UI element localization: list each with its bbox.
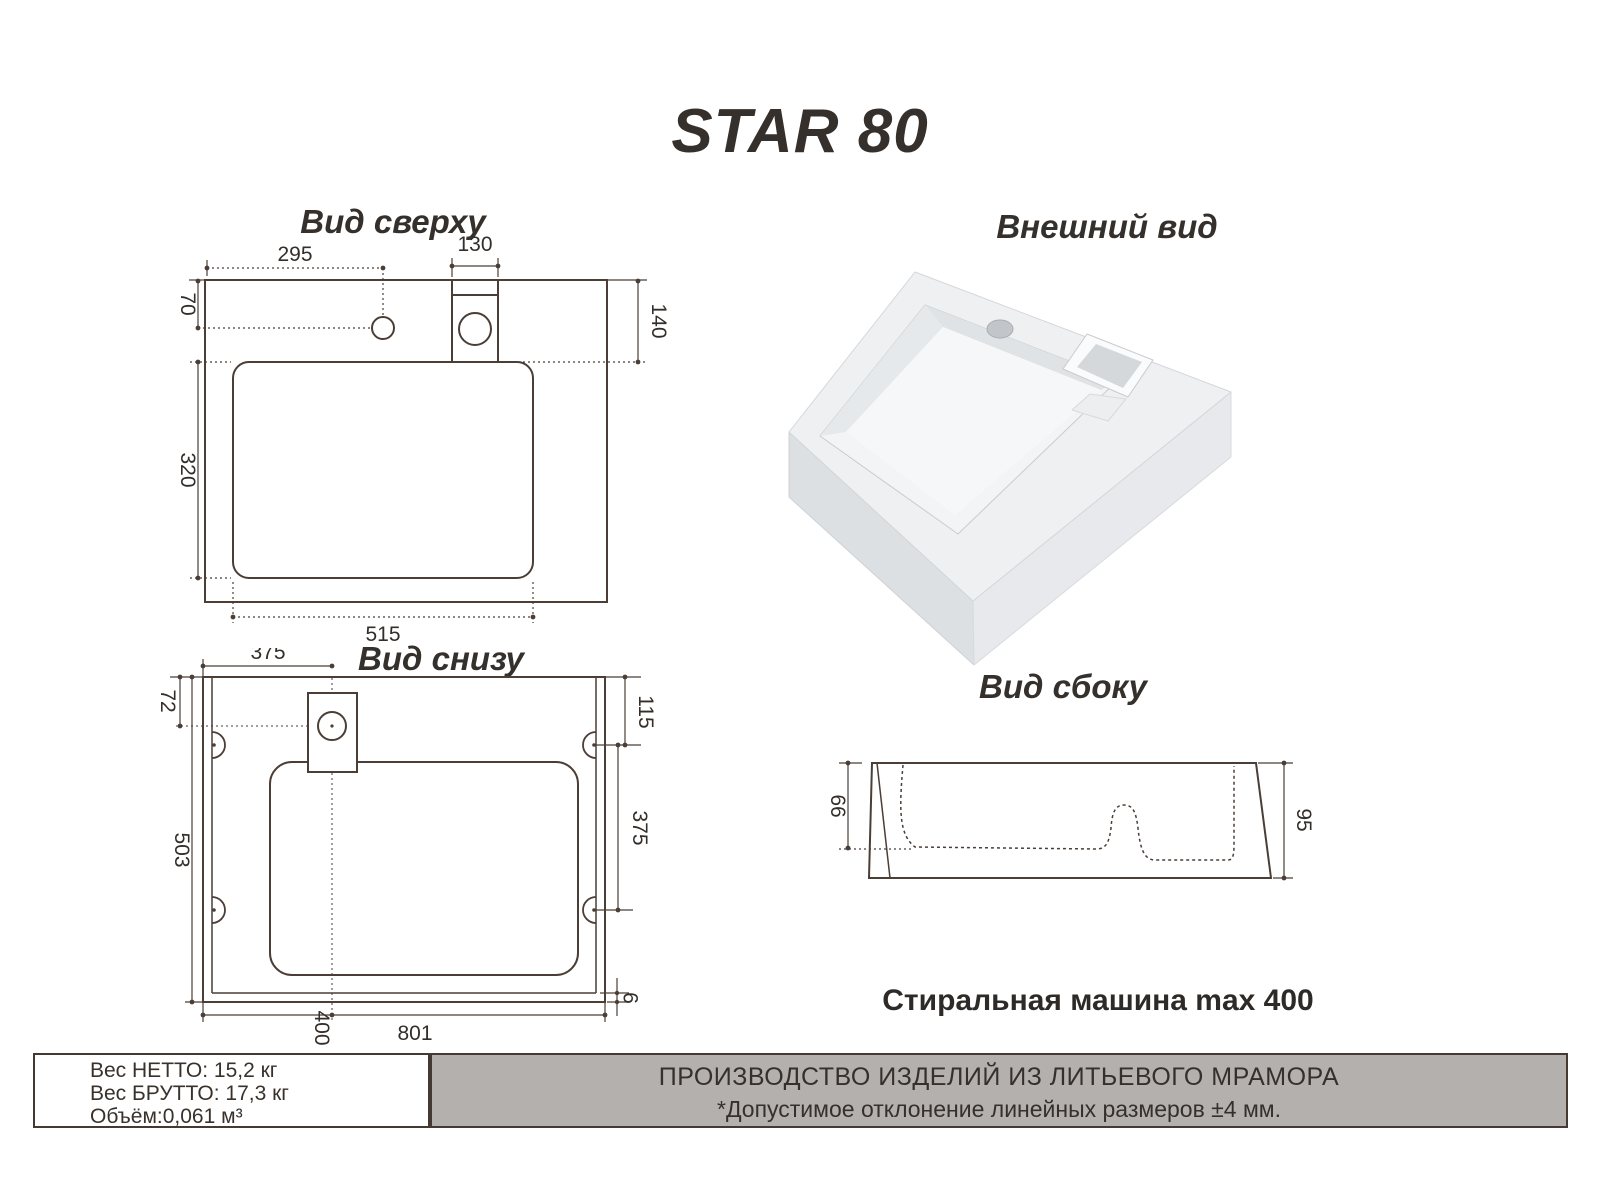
- net-weight: Вес НЕТТО: 15,2 кг: [90, 1059, 428, 1082]
- dim-width: 801: [397, 1022, 432, 1045]
- top-drain-box: [452, 280, 498, 362]
- dim-faucet-y: 70: [176, 292, 199, 315]
- washer-note: Стиральная машина max 400: [882, 984, 1313, 1018]
- bottom-drain-box: [308, 693, 357, 772]
- top-view-drawing: 295 130 70 140 320 515: [140, 232, 680, 650]
- bottom-view-dim-ticks: [178, 664, 628, 1018]
- top-view-outline: [205, 280, 607, 602]
- side-view-drawing: 66 95: [815, 740, 1360, 890]
- dim-rim: 9: [620, 992, 643, 1004]
- dim-hole-pitch: 375: [628, 810, 651, 845]
- dim-bowl-depth: 66: [826, 794, 849, 817]
- external-view-title: Внешний вид: [996, 208, 1217, 246]
- dim-drain-w: 130: [457, 233, 492, 256]
- bottom-view-dimension-lines: [170, 659, 641, 1022]
- top-faucet-hole: [372, 317, 394, 339]
- bottom-view-drawing: 375 72 503 115 375 400 801 9: [140, 648, 680, 1048]
- bottom-outer-edge: [203, 677, 605, 1002]
- sink-3d: [789, 272, 1231, 665]
- dim-basin-w: 515: [365, 623, 400, 646]
- top-basin-edge: [233, 362, 533, 578]
- top-view-dimension-lines: [189, 258, 647, 623]
- dim-height: 95: [1292, 808, 1315, 831]
- page-title: STAR 80: [671, 96, 928, 167]
- tolerance-note: *Допустимое отклонение линейных размеров…: [432, 1096, 1566, 1123]
- top-view-dim-ticks: [196, 264, 641, 620]
- dim-drain-h: 140: [647, 303, 670, 338]
- side-view-dim-ticks: [846, 761, 1287, 881]
- footer-weights-box: Вес НЕТТО: 15,2 кг Вес БРУТТО: 17,3 кг О…: [33, 1053, 430, 1128]
- dim-basin-h: 320: [176, 452, 199, 487]
- gross-weight: Вес БРУТТО: 17,3 кг: [90, 1082, 428, 1105]
- bottom-recess-edge: [270, 762, 578, 975]
- bottom-view-outline: [203, 677, 605, 1002]
- top-outer-edge: [205, 280, 607, 602]
- manufacture-note: ПРОИЗВОДСТВО ИЗДЕЛИЙ ИЗ ЛИТЬЕВОГО МРАМОР…: [432, 1063, 1566, 1092]
- dim-hole-top: 115: [634, 695, 657, 728]
- dim-washer-cx: 400: [310, 1010, 333, 1045]
- side-view-outline: [869, 763, 1271, 878]
- side-basin-profile: [901, 765, 1234, 860]
- dim-depth: 503: [170, 832, 193, 867]
- footer-manufacture-box: ПРОИЗВОДСТВО ИЗДЕЛИЙ ИЗ ЛИТЬЕВОГО МРАМОР…: [430, 1053, 1568, 1128]
- faucet-hole-3d: [987, 320, 1013, 338]
- spec-sheet: STAR 80 Вид сверху Вид снизу Внешний вид…: [0, 0, 1600, 1200]
- external-view-rendering: [760, 250, 1450, 680]
- dim-faucet-x: 295: [277, 243, 312, 266]
- dim-drain-cx: 375: [250, 648, 285, 664]
- dim-drain-cy: 72: [156, 689, 179, 712]
- volume: Объём:0,061 м³: [90, 1105, 428, 1128]
